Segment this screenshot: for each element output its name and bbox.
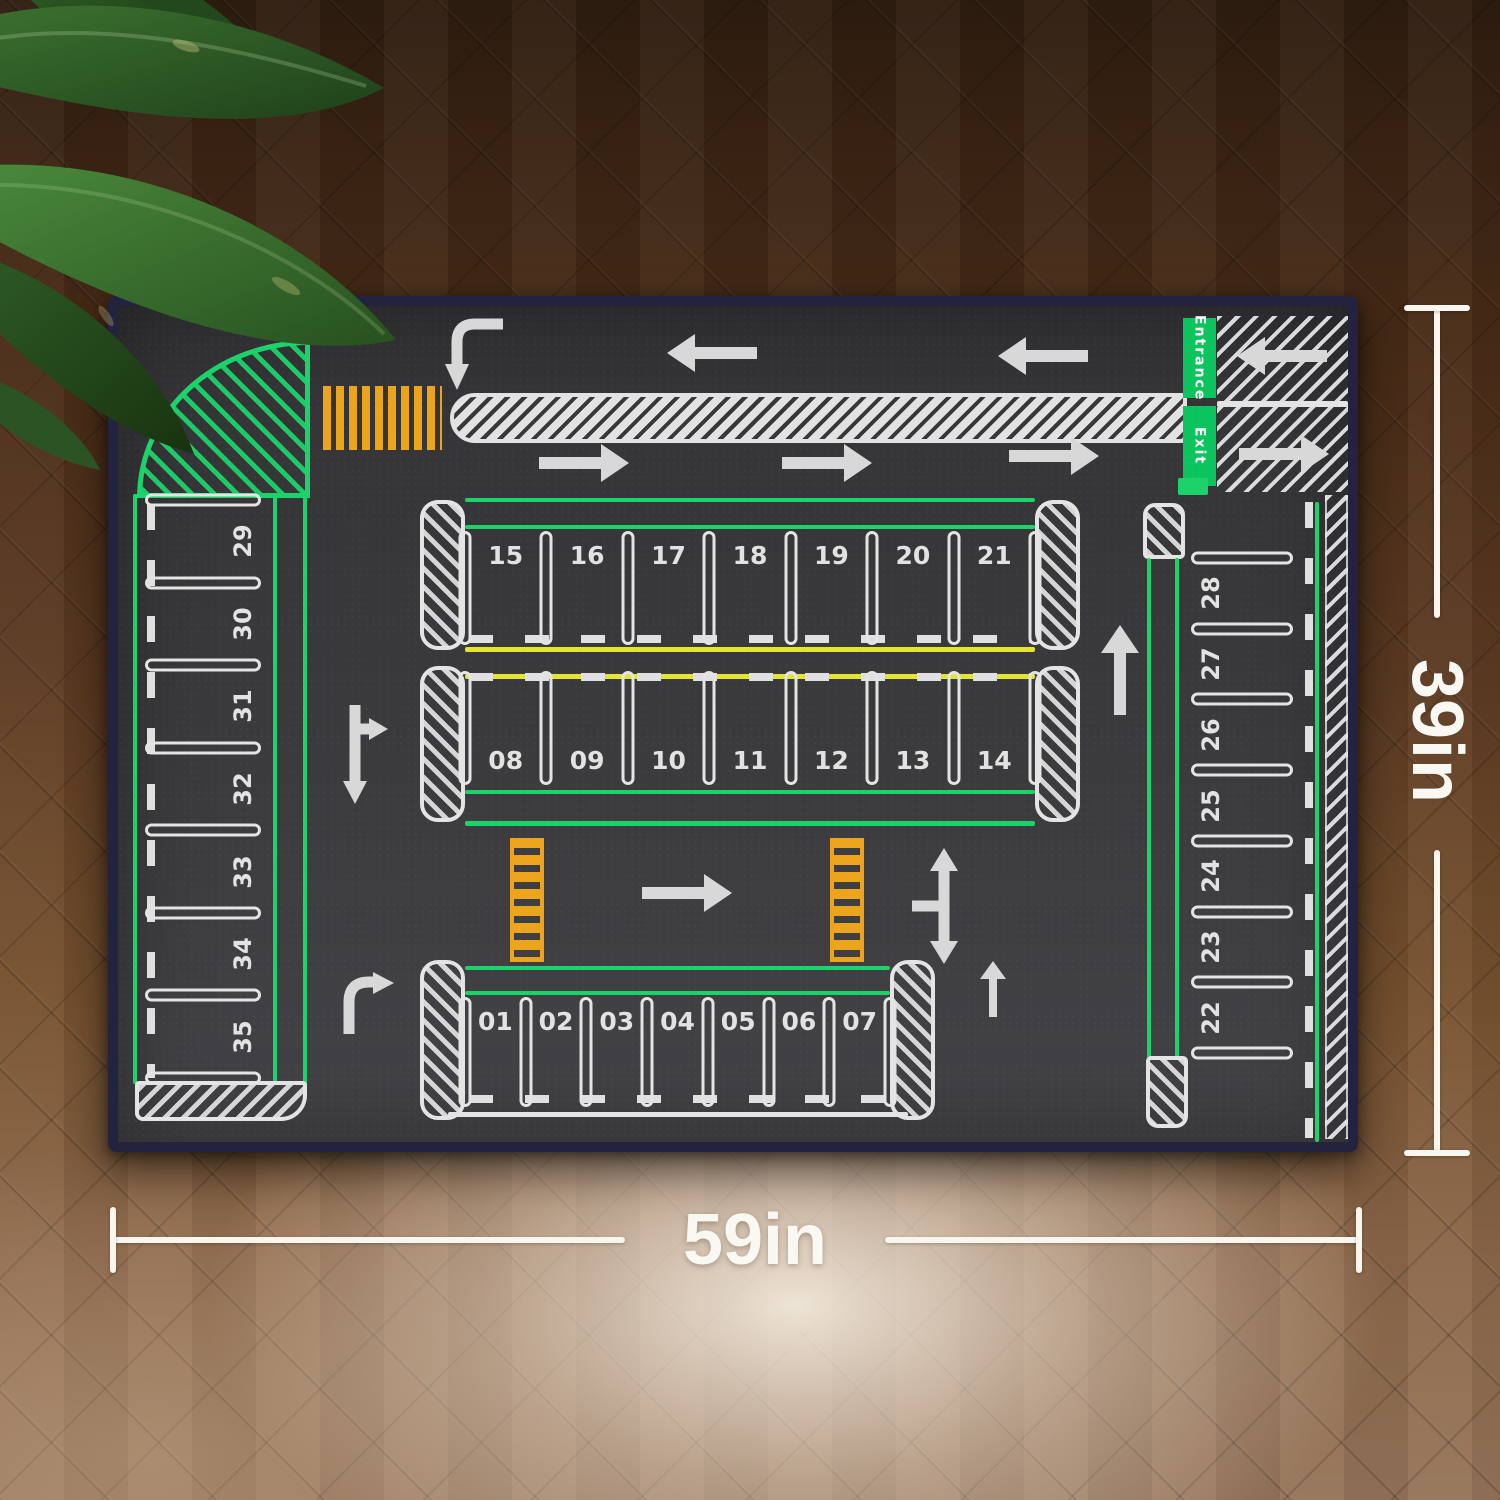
parking-end-cap	[1035, 500, 1080, 650]
arrow-left-icon	[998, 336, 1090, 376]
parking-space-divider	[947, 671, 960, 785]
parking-spot-number: 05	[721, 1007, 756, 1036]
parking-end-cap	[890, 960, 935, 1120]
parking-boundary-line	[465, 498, 1035, 502]
parking-spot-number: 18	[733, 541, 768, 570]
parking-space-divider	[621, 531, 634, 645]
parking-space-divider	[641, 997, 654, 1107]
parking-spot-number: 26	[1197, 718, 1225, 751]
dimension-tick	[1404, 305, 1470, 311]
parking-spot-number: 07	[842, 1007, 877, 1036]
crosswalk-ladder	[510, 838, 544, 962]
parking-spot-number: 10	[651, 746, 686, 775]
parking-spot-number: 15	[488, 541, 523, 570]
turn-right-arrow-icon	[337, 970, 397, 1036]
height-dimension-line	[1434, 308, 1440, 618]
parking-end-cap	[1143, 503, 1185, 559]
parking-spot-number: 08	[488, 746, 523, 775]
parking-space-divider	[1191, 976, 1293, 989]
parking-space-divider	[823, 997, 836, 1107]
arrow-right-icon	[1007, 436, 1099, 476]
parking-spot-number: 33	[229, 855, 257, 888]
parking-spot-number: 25	[1197, 789, 1225, 822]
parking-space-divider	[784, 531, 797, 645]
parking-space-divider	[145, 741, 261, 754]
parking-spot-number: 34	[229, 937, 257, 970]
leaf	[0, 6, 384, 119]
yellow-separator-line	[465, 647, 1035, 652]
parking-space-divider	[459, 997, 472, 1107]
parking-spot-number: 29	[229, 525, 257, 558]
parking-spot-number: 02	[539, 1007, 574, 1036]
parking-spot-number: 04	[660, 1007, 695, 1036]
parking-boundary-line	[465, 790, 1035, 794]
parking-boundary-line	[465, 821, 1035, 826]
parking-space-divider	[947, 531, 960, 645]
parking-space-divider	[621, 671, 634, 785]
parking-space-divider	[1191, 1047, 1293, 1060]
parking-space-divider	[1191, 622, 1293, 635]
arrow-right-icon	[1237, 434, 1329, 474]
green-stub	[1178, 478, 1208, 495]
parking-spot-number: 20	[895, 541, 930, 570]
parking-boundary-line	[1147, 558, 1151, 1058]
dimension-tick	[110, 1207, 116, 1273]
parking-space-divider	[866, 671, 879, 785]
parking-row-south: 01020304050607	[465, 995, 890, 1109]
down-right-branch-arrow-icon	[341, 701, 391, 807]
parking-space-divider	[866, 531, 879, 645]
parking-column-west: 29303132333435	[139, 500, 269, 1078]
parking-row-center-top: 15161718192021	[465, 529, 1035, 647]
scene: Entrance Exit 29303132333435	[0, 0, 1500, 1500]
parking-boundary-line	[1175, 558, 1179, 1058]
parking-space-divider	[145, 576, 261, 589]
dashed-lane-line	[1305, 502, 1313, 1138]
parking-column-east: 28272625242322	[1185, 558, 1305, 1053]
parking-end-cap	[1035, 666, 1080, 822]
parking-space-divider	[459, 671, 472, 785]
parking-space-divider	[540, 531, 553, 645]
parking-space-divider	[703, 531, 716, 645]
arrow-left-icon	[1237, 336, 1329, 376]
parking-spot-number: 21	[977, 541, 1012, 570]
parking-end-cap	[1146, 1056, 1188, 1128]
parking-spot-number: 28	[1197, 577, 1225, 610]
arrow-right-icon	[780, 443, 872, 483]
parking-space-divider	[1191, 693, 1293, 706]
parking-space-divider	[1029, 671, 1042, 785]
parking-space-divider	[145, 494, 261, 507]
parking-spot-number: 12	[814, 746, 849, 775]
height-dimension-line	[1434, 850, 1440, 1153]
parking-boundary-line	[133, 494, 137, 1084]
parking-space-divider	[145, 659, 261, 672]
parking-space-divider	[580, 997, 593, 1107]
parking-spot-number: 24	[1197, 860, 1225, 893]
parking-spot-number: 17	[651, 541, 686, 570]
arrow-up-icon	[980, 961, 1006, 1019]
parking-spot-number: 01	[478, 1007, 513, 1036]
crosswalk-ladder	[830, 838, 864, 962]
entrance-sign: Entrance	[1183, 318, 1216, 398]
parking-spot-number: 31	[229, 690, 257, 723]
edge-hatched-strip	[1325, 495, 1348, 1139]
parking-spot-number: 22	[1197, 1001, 1225, 1034]
dimension-tick	[1404, 1150, 1470, 1156]
width-dimension-line	[885, 1237, 1360, 1243]
height-dimension-label: 39in	[1396, 659, 1478, 803]
parking-space-divider	[145, 989, 261, 1002]
parking-spot-number: 16	[570, 541, 605, 570]
parking-space-divider	[784, 671, 797, 785]
parking-spot-number: 19	[814, 541, 849, 570]
parking-spot-number: 32	[229, 772, 257, 805]
parking-space-divider	[1029, 531, 1042, 645]
parking-spot-number: 27	[1197, 647, 1225, 680]
parking-space-divider	[1191, 552, 1293, 565]
parking-spot-number: 30	[229, 607, 257, 640]
parking-row-center-bottom: 08091011121314	[465, 669, 1035, 787]
exit-sign: Exit	[1183, 406, 1216, 486]
parking-spot-number: 06	[782, 1007, 817, 1036]
parking-boundary-line	[465, 966, 890, 970]
parking-end-cap	[135, 1081, 307, 1121]
parking-spot-number: 09	[570, 746, 605, 775]
parking-space-divider	[145, 824, 261, 837]
parking-spot-number: 03	[599, 1007, 634, 1036]
parking-space-divider	[519, 997, 532, 1107]
parking-boundary-line	[1315, 502, 1319, 1142]
potted-plant-leaves	[0, 0, 466, 486]
parking-spot-number: 14	[977, 746, 1012, 775]
parking-space-divider	[1191, 764, 1293, 777]
dimension-tick	[1356, 1207, 1362, 1273]
parking-boundary-line	[303, 494, 307, 1086]
parking-spot-number: 35	[229, 1020, 257, 1053]
lane-divider-line	[1217, 401, 1348, 407]
parking-space-divider	[540, 671, 553, 785]
arrow-up-icon	[1100, 625, 1140, 717]
parking-space-divider	[1191, 905, 1293, 918]
parking-spot-number: 13	[895, 746, 930, 775]
width-dimension-line	[113, 1237, 625, 1243]
parking-space-divider	[884, 997, 897, 1107]
entrance-label: Entrance	[1192, 315, 1208, 401]
parking-space-divider	[145, 906, 261, 919]
parking-space-divider	[1191, 834, 1293, 847]
parking-space-divider	[703, 671, 716, 785]
parking-space-divider	[459, 531, 472, 645]
parking-space-divider	[701, 997, 714, 1107]
entrance-exit-lane-block	[1217, 316, 1348, 492]
arrow-left-icon	[667, 333, 759, 373]
arrow-right-icon	[640, 873, 732, 913]
parking-edge-line	[448, 1112, 908, 1117]
parking-spot-number: 23	[1197, 930, 1225, 963]
parking-space-divider	[762, 997, 775, 1107]
exit-label: Exit	[1192, 427, 1208, 465]
parking-boundary-line	[273, 494, 277, 1084]
arrow-right-icon	[537, 443, 629, 483]
width-dimension-label: 59in	[683, 1199, 827, 1281]
t-junction-arrow-icon	[908, 848, 964, 964]
parking-spot-number: 11	[733, 746, 768, 775]
